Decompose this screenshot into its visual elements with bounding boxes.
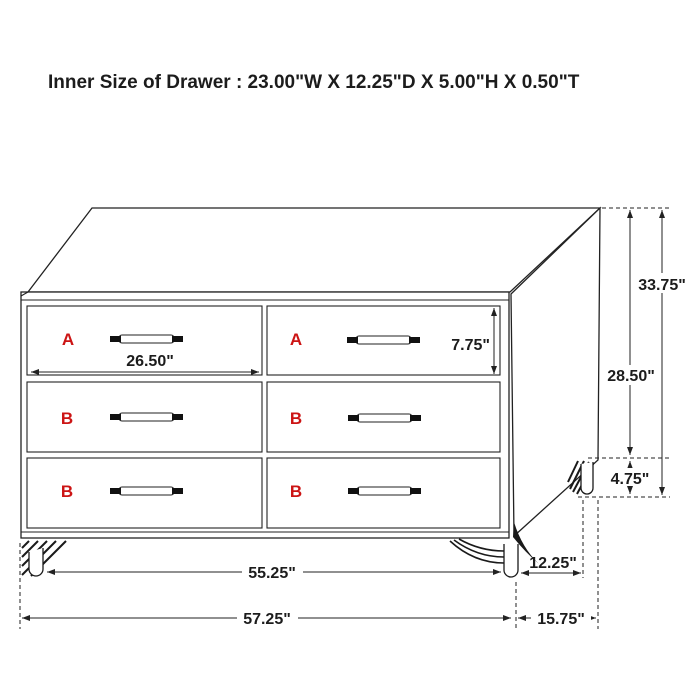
dim-leg-height-label: 4.75" bbox=[611, 471, 650, 488]
diagram-title: Inner Size of Drawer : 23.00"W X 12.25"D… bbox=[48, 72, 580, 93]
cabinet-top bbox=[28, 208, 600, 292]
dim-case-height-label: 28.50" bbox=[607, 368, 655, 385]
dim-case-width-label: 55.25" bbox=[248, 565, 296, 582]
dim-total-depth: 15.75" bbox=[518, 609, 596, 628]
dim-drawer-face-height-label: 7.75" bbox=[451, 337, 490, 354]
dim-case-width: 55.25" bbox=[47, 563, 501, 582]
dim-total-height: 33.75" bbox=[633, 210, 691, 495]
dim-total-width-label: 57.25" bbox=[243, 611, 291, 628]
dim-case-height: 28.50" bbox=[601, 210, 660, 455]
front-left-leg bbox=[22, 541, 66, 576]
drawer-label-middle-right: B bbox=[290, 409, 302, 428]
dim-total-depth-label: 15.75" bbox=[537, 611, 585, 628]
dim-total-width: 57.25" bbox=[22, 609, 511, 628]
dim-leg-depth-span: 12.25" bbox=[521, 555, 581, 573]
drawer-label-top-right: A bbox=[290, 330, 302, 349]
cabinet-front bbox=[21, 292, 509, 538]
dim-leg-height: 4.75" bbox=[606, 461, 654, 494]
dim-inner-drawer-width-label: 26.50" bbox=[126, 353, 174, 370]
drawer-label-top-left: A bbox=[62, 330, 74, 349]
dimension-diagram: Inner Size of Drawer : 23.00"W X 12.25"D… bbox=[0, 0, 700, 700]
drawer-label-middle-left: B bbox=[61, 409, 73, 428]
drawer-label-bottom-left: B bbox=[61, 482, 73, 501]
dresser-line-drawing: Inner Size of Drawer : 23.00"W X 12.25"D… bbox=[0, 0, 700, 700]
dim-total-height-label: 33.75" bbox=[638, 277, 686, 294]
drawer-label-bottom-right: B bbox=[290, 482, 302, 501]
dim-leg-depth-span-label: 12.25" bbox=[529, 555, 577, 572]
